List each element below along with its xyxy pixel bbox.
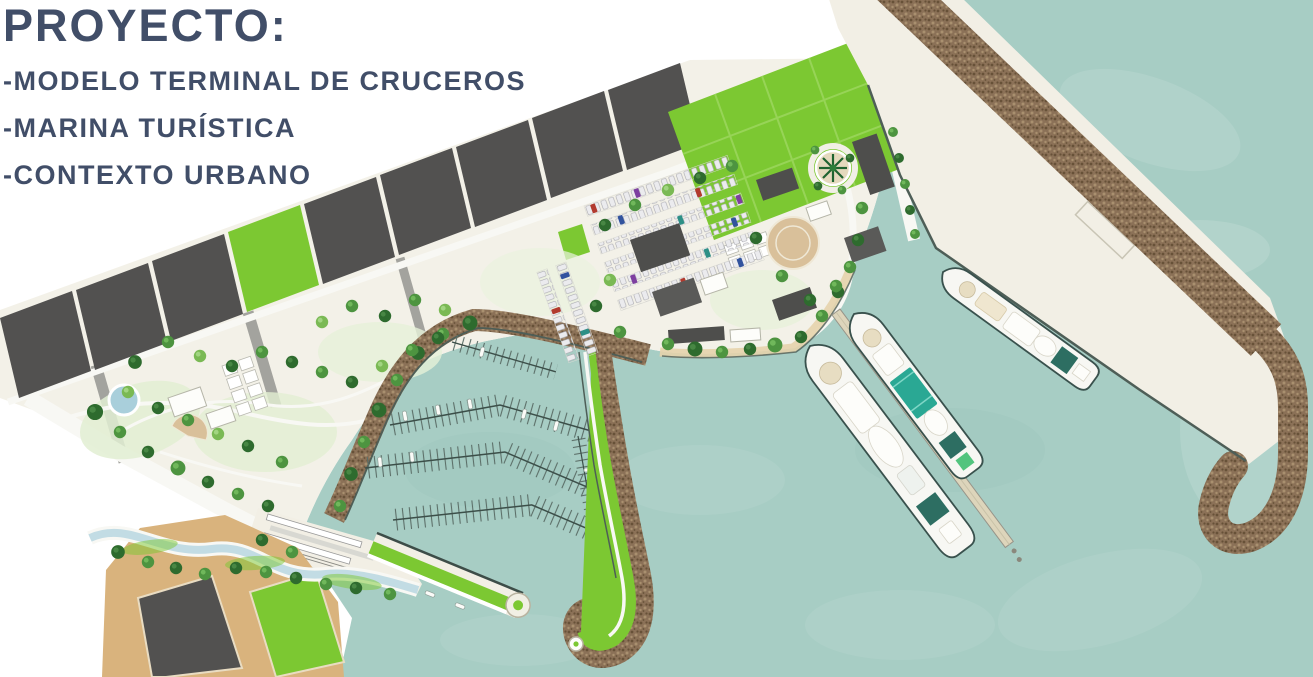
- project-bullet-marina: -MARINA TURÍSTICA: [3, 105, 526, 152]
- project-bullet-cruise-terminal: -MODELO TERMINAL DE CRUCEROS: [3, 58, 526, 105]
- project-title-block: PROYECTO: -MODELO TERMINAL DE CRUCEROS -…: [3, 0, 526, 199]
- project-bullet-urban-context: -CONTEXTO URBANO: [3, 152, 526, 199]
- slide-canvas: PROYECTO: -MODELO TERMINAL DE CRUCEROS -…: [0, 0, 1313, 677]
- project-bullets: -MODELO TERMINAL DE CRUCEROS -MARINA TUR…: [3, 58, 526, 199]
- building: [730, 328, 761, 342]
- project-title: PROYECTO:: [3, 0, 526, 52]
